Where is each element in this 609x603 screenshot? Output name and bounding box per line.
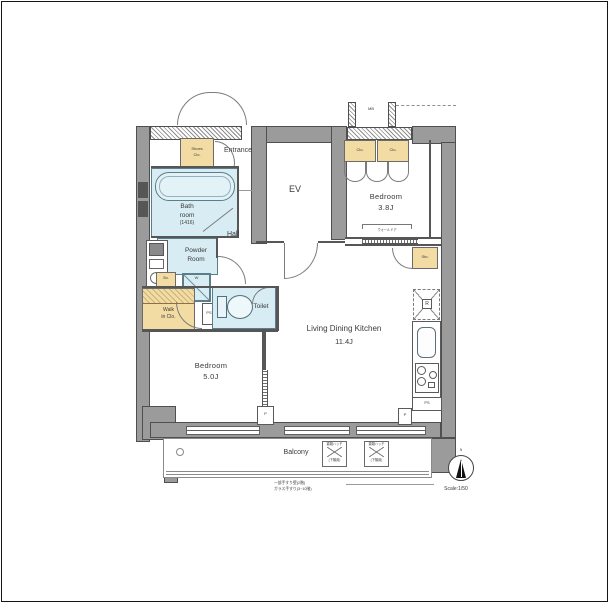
wall-hatched-bedroom: [347, 127, 412, 140]
pillar-right-label: P: [398, 413, 412, 417]
wall-bedroom38-right-line: [429, 140, 431, 237]
closet-bifold-arc-3: [388, 162, 409, 182]
bedroom50-window: [186, 426, 260, 435]
railing-note: 一部手すり壁(2階) ガラス手すり(3~10階): [274, 481, 346, 492]
refrigerator-label: R: [422, 299, 432, 309]
balcony-railing: [166, 471, 429, 475]
bedroom38-wall-door-track: [362, 239, 418, 244]
shoes-closet-label-1: Shoes: [180, 147, 214, 151]
bedroom50-label-1: Bedroom: [185, 362, 237, 370]
pipe-space-kitchen-label: PS: [412, 401, 442, 405]
meter-box-stub-left: [348, 102, 356, 127]
railing-note-line-1: 一部手すり壁(2階): [274, 481, 305, 485]
vanity-counter: [149, 259, 164, 269]
bedroom50-sliding-door-track: [262, 370, 268, 408]
vanity-mirror: [149, 243, 164, 256]
ldk-window-1: [284, 426, 350, 435]
evacuation-hatch-2-label-2: (下階用): [364, 459, 389, 463]
wall-door-note: ウォールドア: [357, 229, 417, 233]
toilet-tank: [217, 296, 227, 318]
ldk-label-1: Living Dining Kitchen: [282, 325, 406, 334]
bathtub-inner: [159, 176, 231, 197]
railing-note-line-2: ガラス手すり(3~10階): [274, 487, 312, 491]
toilet-label: Toilet: [244, 303, 278, 310]
bedroom38-closet-left-label: Clo.: [344, 148, 376, 152]
bedroom38-storage-label: Sto.: [412, 255, 438, 259]
wall-ev-left: [251, 126, 267, 244]
wall-powder-right: [216, 238, 218, 258]
hall-label: Hall: [217, 231, 249, 239]
bedroom38-label-1: Bedroom: [360, 193, 412, 201]
scale-label: Scale:1/50: [426, 487, 486, 493]
powder-room-label-2: Room: [170, 256, 222, 263]
railing-note-leader-line: [346, 484, 434, 485]
wall-bath-top: [151, 166, 239, 168]
closet-bifold-arc-2: [366, 162, 388, 182]
wall-hall-ldk-left: [256, 241, 284, 243]
bathroom-duct-block-1: [138, 182, 148, 198]
evacuation-hatch-1-symbol: [327, 447, 342, 457]
stove-grill: [428, 382, 435, 388]
bathroom-label-2: room: [163, 212, 211, 219]
wall-wet-row-top: [142, 286, 278, 288]
bathroom-duct-block-2: [138, 201, 148, 217]
kitchen-sink: [417, 327, 436, 358]
compass-needle-split-line: [461, 461, 462, 477]
evacuation-hatch-1-label-2: (下階用): [322, 459, 347, 463]
wall-toilet-right: [276, 286, 279, 331]
powder-room-label-1: Powder: [170, 247, 222, 254]
bathroom-label-3: (1416): [163, 221, 211, 227]
stove-burner-2: [417, 377, 426, 386]
entrance-label: Entrance: [214, 147, 262, 155]
wall-bedroom50-top: [142, 329, 278, 332]
elevator-label: EV: [279, 184, 311, 194]
balcony-label: Balcony: [272, 449, 320, 457]
wall-right: [441, 142, 456, 438]
ldk-window-2: [356, 426, 426, 435]
ldk-label-2: 11.4J: [282, 338, 406, 346]
floor-plan: MB Shoes Clo. Entrance EV Bath room (141…: [0, 0, 609, 603]
closet-bifold-arc-1: [344, 162, 366, 182]
stove-burner-1: [417, 366, 426, 375]
compass-north-label: N: [448, 449, 474, 453]
wall-hall-ldk-right: [318, 241, 347, 243]
outer-frame: [1, 1, 608, 602]
wall-bath-right: [237, 168, 239, 238]
bedroom50-label-2: 5.0J: [185, 373, 237, 381]
storage-small-label: Sto.: [156, 277, 176, 281]
pillar-left-label: P: [257, 412, 274, 416]
bedroom38-closet-right-label: Clo.: [377, 148, 409, 152]
balcony-drain: [176, 448, 184, 456]
shoes-closet-label-2: Clo.: [180, 153, 214, 157]
meter-box-stub-right: [388, 102, 396, 127]
bathroom-label-1: Bath: [163, 203, 211, 210]
bedroom38-label-2: 3.8J: [360, 204, 412, 212]
washer-label: W: [182, 276, 211, 280]
evacuation-hatch-2-symbol: [369, 447, 384, 457]
meter-box-label: MB: [358, 107, 384, 111]
neighbor-boundary-dashed-line: [396, 105, 456, 106]
stove-burner-3: [429, 371, 437, 379]
